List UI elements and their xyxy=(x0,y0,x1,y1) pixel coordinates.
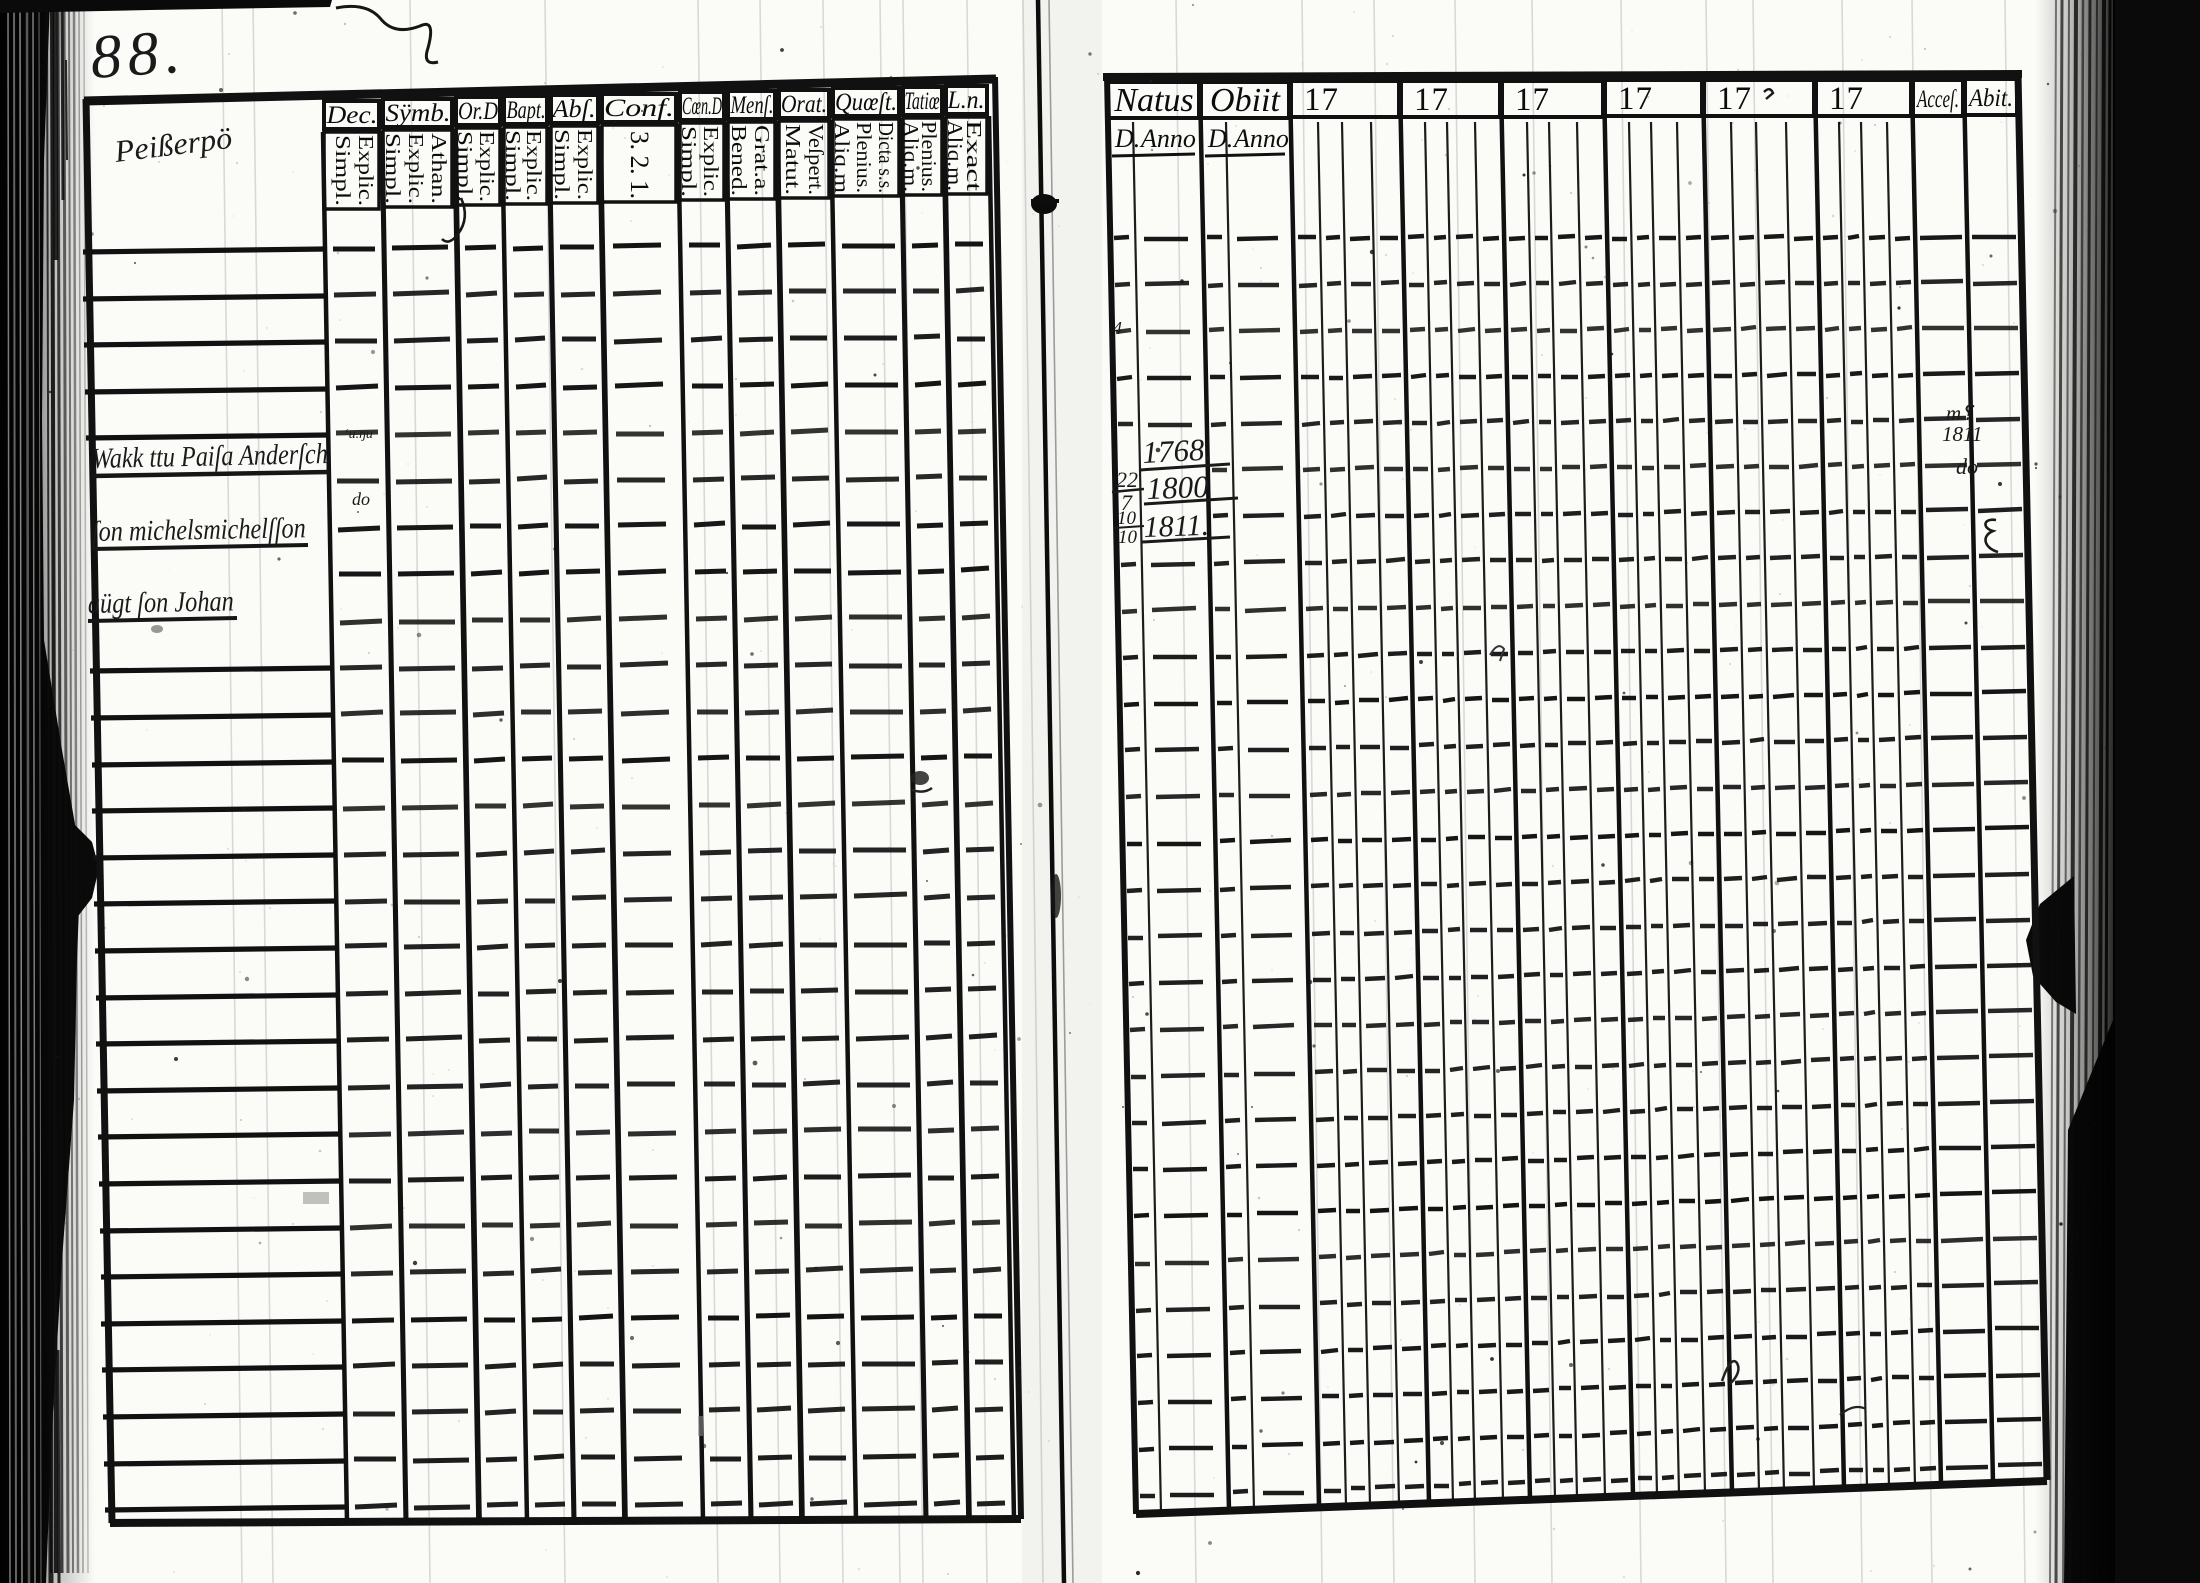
svg-text:Explic.: Explic. xyxy=(573,129,597,200)
svg-text:Explic.: Explic. xyxy=(699,126,723,197)
svg-text:17: 17 xyxy=(1829,81,1864,117)
svg-text:3. 2. 1.: 3. 2. 1. xyxy=(625,131,654,199)
svg-text:Obiit: Obiit xyxy=(1210,82,1281,119)
svg-text:Quœſt.: Quœſt. xyxy=(835,89,897,116)
svg-text:17: 17 xyxy=(1414,82,1449,118)
svg-text:aügt ſon Johan: aügt ſon Johan xyxy=(88,585,235,620)
svg-text:D.: D. xyxy=(1114,124,1140,153)
svg-text:10: 10 xyxy=(1118,527,1138,548)
svg-text:4: 4 xyxy=(1113,318,1122,338)
svg-text:D.: D. xyxy=(1207,124,1233,153)
svg-text:Natus: Natus xyxy=(1113,82,1193,119)
svg-text:Dicta s.s.: Dicta s.s. xyxy=(874,122,898,193)
svg-text:Acceſ.: Acceſ. xyxy=(1916,86,1959,113)
svg-text:Abſ.: Abſ. xyxy=(550,96,595,123)
svg-text:Simpl.: Simpl. xyxy=(550,129,574,200)
svg-text:Cœn.D: Cœn.D xyxy=(682,93,722,120)
svg-text:Veſpert.: Veſpert. xyxy=(804,124,828,195)
svg-text:Wakk ttu Paiſa Anderſch: Wakk ttu Paiſa Anderſch xyxy=(91,438,328,475)
svg-text:Sÿmb.: Sÿmb. xyxy=(386,100,451,127)
svg-text:17: 17 xyxy=(1304,82,1339,118)
svg-text:Athan.: Athan. xyxy=(427,133,451,204)
svg-text:Anno: Anno xyxy=(1232,124,1289,153)
svg-text:22: 22 xyxy=(1116,467,1138,492)
svg-text:Bapt.: Bapt. xyxy=(507,97,546,124)
svg-text:17: 17 xyxy=(1717,81,1752,117)
svg-text:Simpl.: Simpl. xyxy=(331,135,355,206)
svg-text:Grat.a.: Grat.a. xyxy=(750,125,774,196)
svg-text:Plenius.: Plenius. xyxy=(852,122,876,193)
svg-text:Dec.: Dec. xyxy=(325,102,377,129)
svg-text:Explic.: Explic. xyxy=(475,131,499,202)
svg-text:do: do xyxy=(352,489,370,509)
svg-text:1811: 1811 xyxy=(1942,422,1982,446)
svg-text:Conf.: Conf. xyxy=(604,95,674,122)
svg-text:Or.D: Or.D xyxy=(458,98,498,125)
svg-text:Bened.: Bened. xyxy=(727,125,751,196)
svg-text:L.n.: L.n. xyxy=(947,87,985,114)
svg-text:Abit.: Abit. xyxy=(1967,85,2013,112)
svg-text:17: 17 xyxy=(1515,82,1550,118)
svg-text:do: do xyxy=(1956,454,1978,479)
svg-text:Menſ.: Menſ. xyxy=(730,92,774,119)
svg-text:Orat.: Orat. xyxy=(781,91,827,118)
svg-text:ſon michelsmichelſſon: ſon michelsmichelſſon xyxy=(92,512,307,548)
svg-text:17: 17 xyxy=(1618,81,1653,117)
svg-text:Anno: Anno xyxy=(1139,124,1196,153)
svg-text:Tatiœ: Tatiœ xyxy=(905,88,940,115)
svg-text:88.: 88. xyxy=(88,17,188,91)
svg-text:Explic.: Explic. xyxy=(404,133,428,204)
svg-text:Explic.: Explic. xyxy=(354,135,378,206)
svg-text:ʻu.ŋu: ʻu.ŋu xyxy=(344,427,373,442)
svg-text:Matut.: Matut. xyxy=(781,124,805,195)
svg-text:1768.: 1768. xyxy=(1142,431,1213,470)
